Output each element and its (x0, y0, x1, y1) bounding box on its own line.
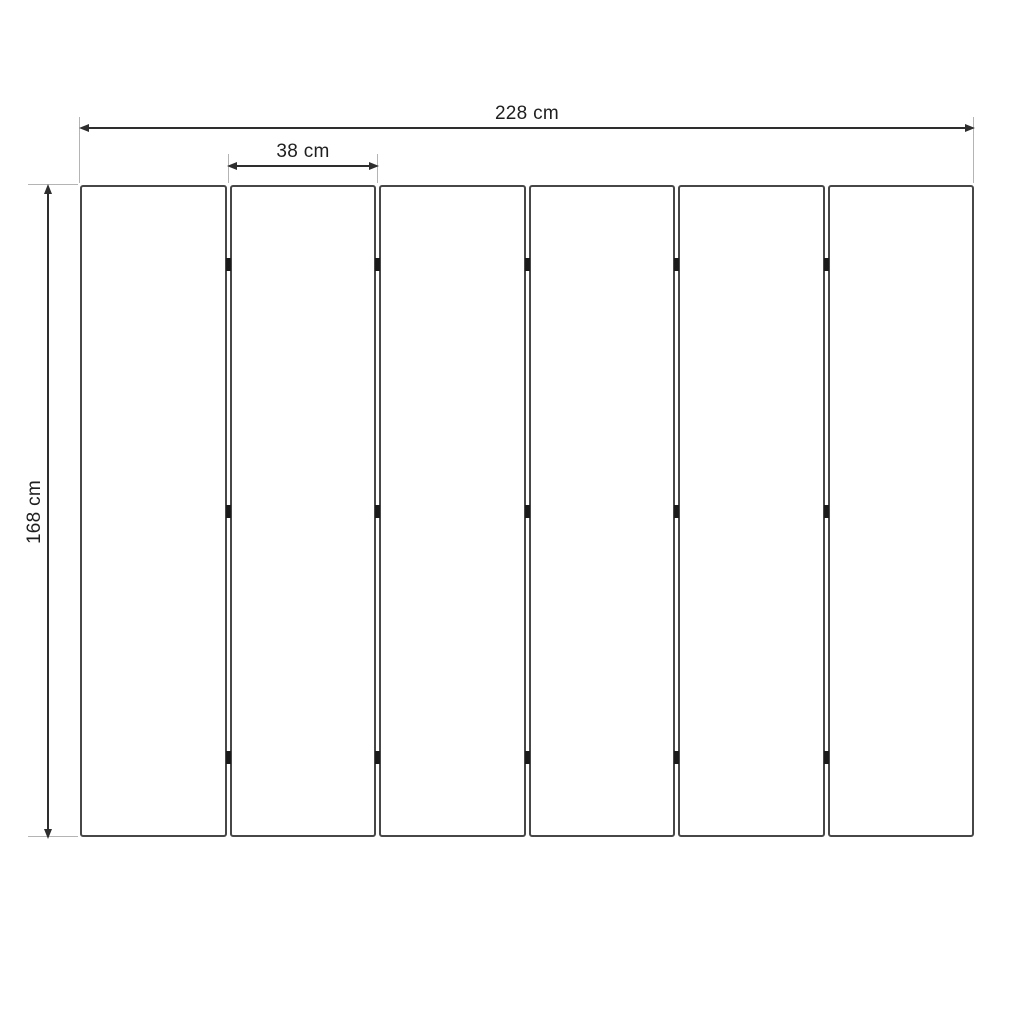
hinge (375, 751, 380, 764)
arrowhead-right-icon (369, 162, 379, 170)
panel-4 (529, 185, 676, 837)
dimension-total-width-label: 228 cm (495, 103, 559, 125)
hinge (824, 505, 829, 518)
dimension-panel-width-label: 38 cm (276, 141, 329, 163)
hinge (375, 258, 380, 271)
arrowhead-up-icon (44, 184, 52, 194)
dimension-panel-width: 38 cm (228, 158, 378, 174)
diagram-canvas: 228 cm 38 cm 168 cm (0, 0, 1024, 1024)
dimension-height-label: 168 cm (24, 479, 46, 543)
panel-5 (678, 185, 825, 837)
hinge (226, 505, 231, 518)
hinge (226, 258, 231, 271)
arrowhead-left-icon (227, 162, 237, 170)
arrowhead-right-icon (965, 124, 975, 132)
hinge (525, 505, 530, 518)
hinge (674, 505, 679, 518)
hinge (674, 751, 679, 764)
panel-row (80, 185, 974, 837)
arrowhead-left-icon (79, 124, 89, 132)
dimension-line (82, 127, 972, 129)
hinge (824, 258, 829, 271)
dimension-line (47, 187, 49, 836)
hinge (226, 751, 231, 764)
dimension-total-width: 228 cm (80, 120, 974, 136)
arrowhead-down-icon (44, 829, 52, 839)
panel-3 (379, 185, 526, 837)
panel-2 (230, 185, 377, 837)
hinge (525, 258, 530, 271)
panel-6 (828, 185, 975, 837)
panel-1 (80, 185, 227, 837)
dimension-line (230, 165, 376, 167)
dimension-height: 168 cm (40, 185, 56, 838)
hinge (674, 258, 679, 271)
hinge (375, 505, 380, 518)
hinge (824, 751, 829, 764)
hinge (525, 751, 530, 764)
